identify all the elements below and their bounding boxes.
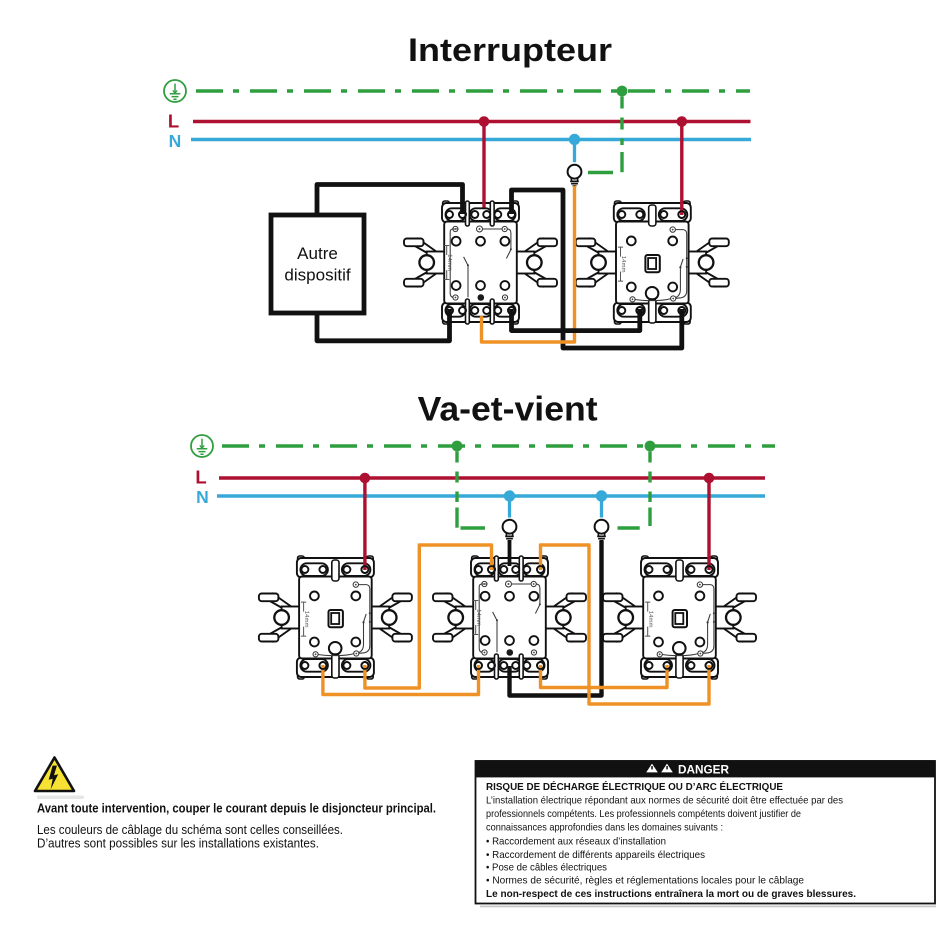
svg-text:• Normes de sécurité, règles e: • Normes de sécurité, règles et réglemen… xyxy=(486,876,804,887)
svg-text:Le non-respect de ces instruct: Le non-respect de ces instructions entra… xyxy=(486,889,856,900)
svg-text:• Pose de câbles électriques: • Pose de câbles électriques xyxy=(486,863,607,874)
svg-text:L’installation électrique répo: L’installation électrique répondant aux … xyxy=(486,796,843,807)
svg-text:L: L xyxy=(195,467,206,488)
svg-text:• Raccordement aux réseaux d’i: • Raccordement aux réseaux d’installatio… xyxy=(486,837,666,848)
svg-text:DANGER: DANGER xyxy=(678,764,730,776)
svg-text:professionnels compétents. Les: professionnels compétents. Les professio… xyxy=(486,809,801,820)
svg-text:Autre: Autre xyxy=(297,244,338,263)
svg-text:Avant toute intervention, coup: Avant toute intervention, couper le cour… xyxy=(37,802,436,816)
svg-text:Va-et-vient: Va-et-vient xyxy=(418,391,598,429)
svg-text:Les couleurs de câblage du sch: Les couleurs de câblage du schéma sont c… xyxy=(37,823,343,837)
svg-text:RISQUE DE DÉCHARGE ÉLECTRIQUE: RISQUE DE DÉCHARGE ÉLECTRIQUE OU D’ARC É… xyxy=(486,780,783,793)
svg-text:L: L xyxy=(168,110,179,131)
svg-text:Interrupteur: Interrupteur xyxy=(408,32,612,68)
svg-text:N: N xyxy=(169,131,182,151)
svg-text:connaissances approfondies dan: connaissances approfondies dans les doma… xyxy=(486,823,723,834)
svg-text:dispositif: dispositif xyxy=(284,266,350,285)
svg-text:D’autres sont possibles sur le: D’autres sont possibles sur les installa… xyxy=(37,837,319,851)
svg-text:• Raccordement de différents a: • Raccordement de différents appareils é… xyxy=(486,850,705,861)
svg-text:N: N xyxy=(196,487,209,507)
